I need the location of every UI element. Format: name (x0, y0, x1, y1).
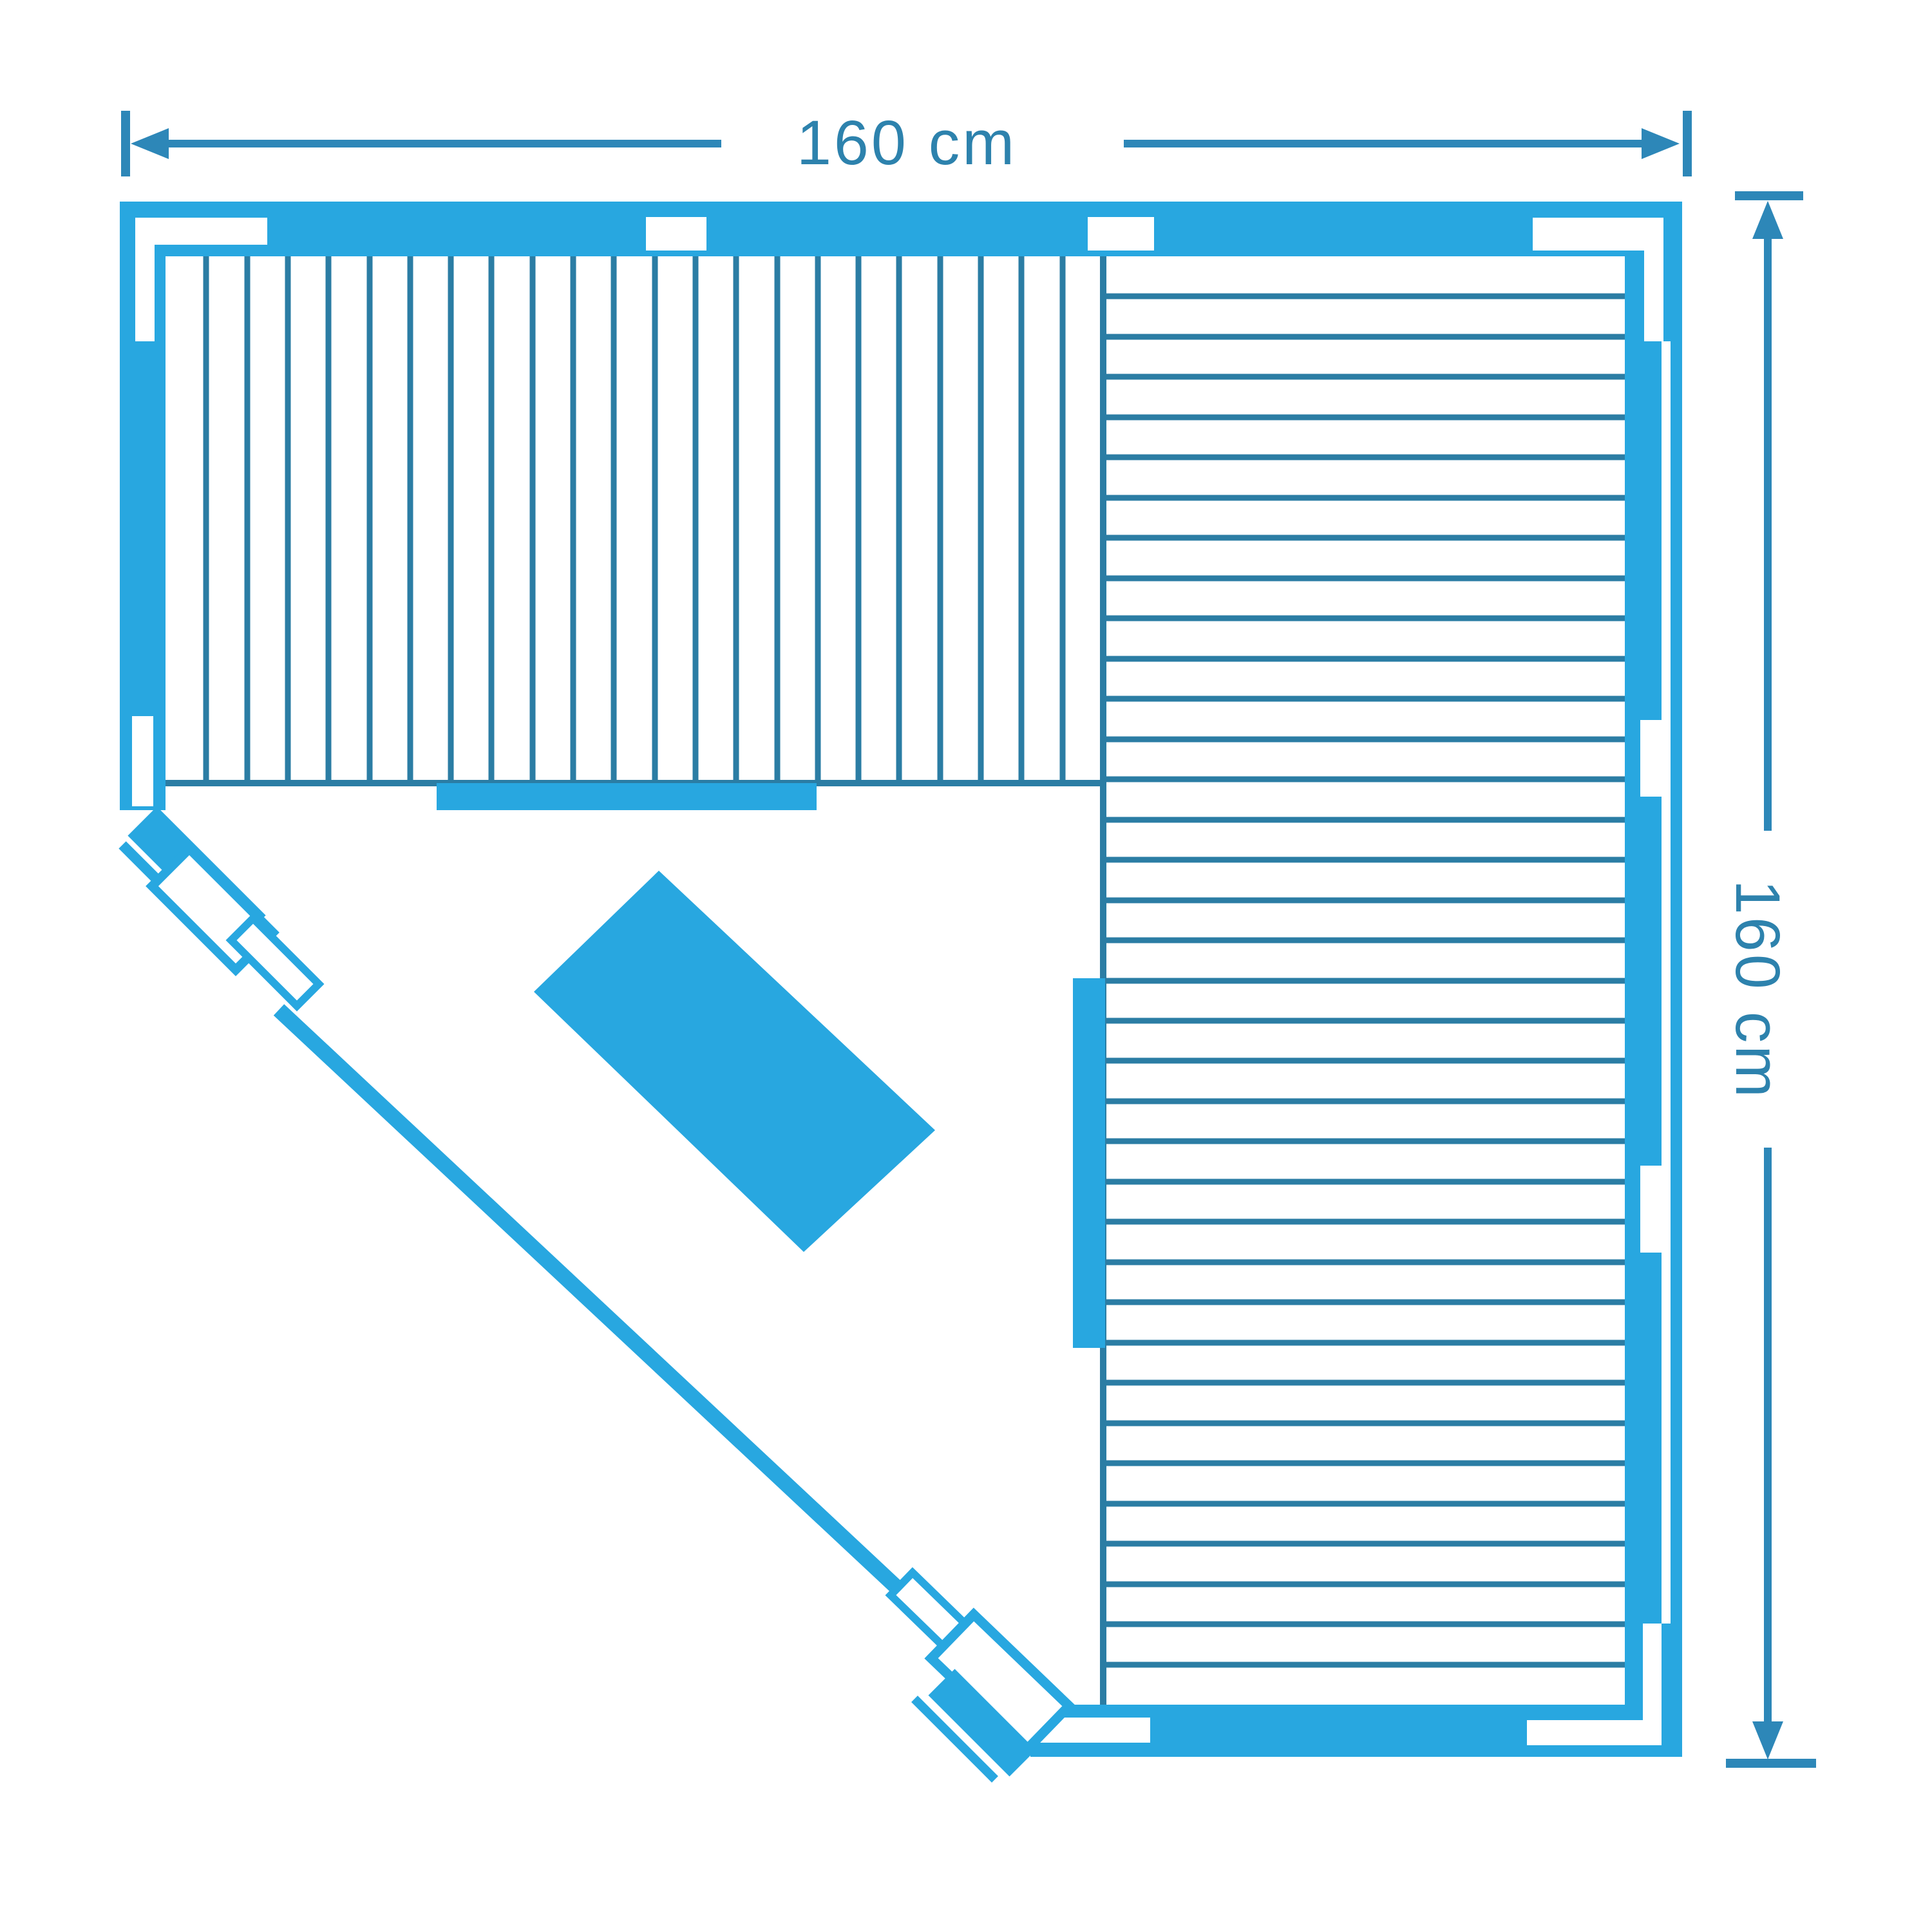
top-bench (166, 256, 1103, 810)
top-wall (120, 202, 1682, 256)
corner-joint-top-right-h (1533, 218, 1663, 251)
right-bench-backrest (1073, 978, 1105, 1348)
right-wall (1625, 256, 1682, 1705)
corner-joint-bottom-right-v (1643, 1624, 1662, 1732)
corner-joint-top-left-v (135, 218, 155, 341)
floor-plan-drawing (0, 0, 1932, 1932)
right-wall-joint-2 (1640, 1166, 1662, 1253)
sauna-floor-plan: 160 cm 160 cm (0, 0, 1932, 1932)
left-wall-joint (132, 716, 153, 806)
dim-top-arrow-right (1642, 128, 1680, 159)
corner-joint-top-right-v (1644, 251, 1663, 341)
top-wall-joint-2 (1088, 217, 1154, 251)
right-wall-joint-1 (1640, 720, 1662, 797)
dimension-label-right: 160 cm (1721, 880, 1794, 1100)
corner-joint-bottom-right-h (1527, 1720, 1662, 1745)
dim-right-arrow-down (1752, 1721, 1783, 1759)
corner-joint-top-left-h (135, 218, 267, 245)
right-wall-gap (1662, 341, 1671, 1624)
dim-right-arrow-up (1752, 201, 1783, 239)
top-bench-apron (437, 783, 817, 810)
right-bench (1073, 256, 1625, 1705)
heater-bench (534, 871, 935, 1252)
dim-top-arrow-left (131, 128, 169, 159)
heater-bench-rect (534, 871, 935, 1252)
dimension-label-top: 160 cm (797, 107, 1017, 179)
top-wall-joint-1 (646, 217, 706, 251)
